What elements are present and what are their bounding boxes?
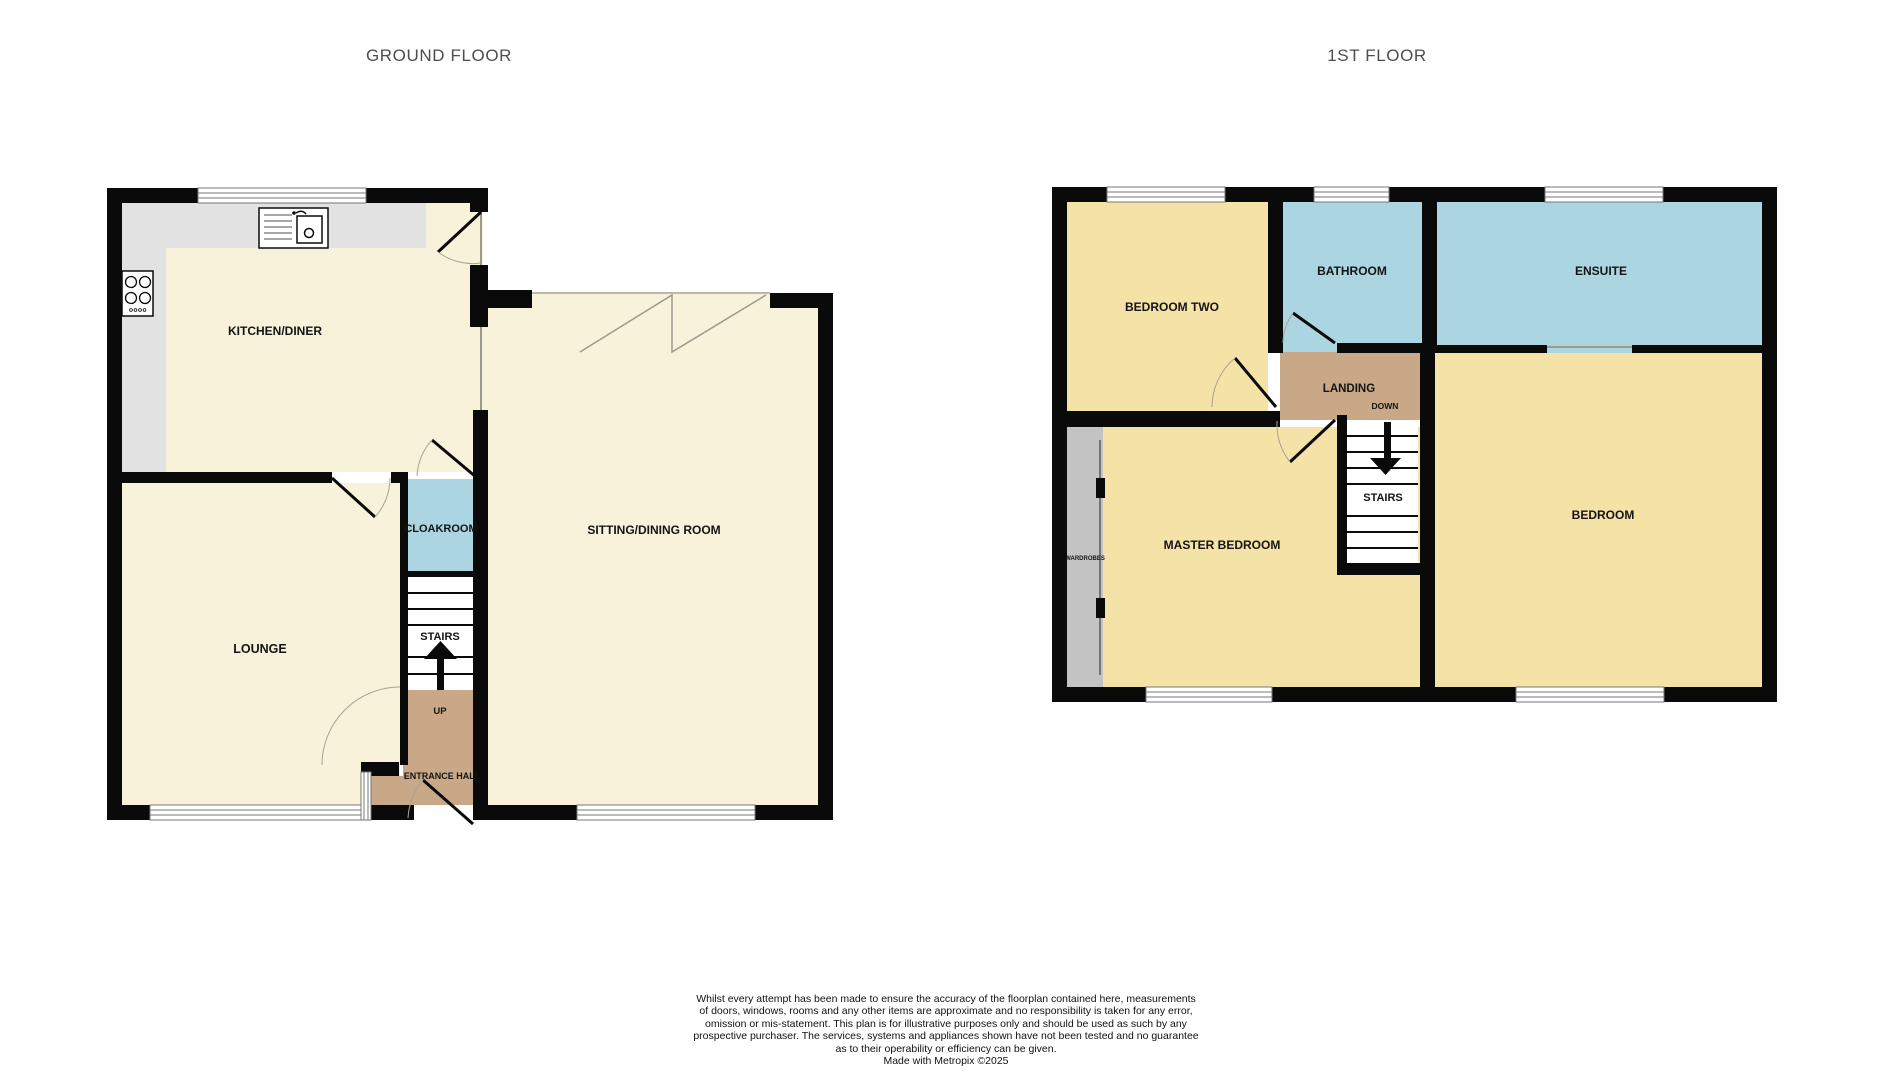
window xyxy=(577,805,755,820)
ground-floor-plan: KITCHEN/DINER LOUNGE SITTING/DINING ROOM… xyxy=(107,188,833,824)
master-bedroom-label: MASTER BEDROOM xyxy=(1164,538,1281,552)
wall-segment xyxy=(107,188,122,820)
wall-segment xyxy=(1067,411,1280,427)
disclaimer-credit: Made with Metropix ©2025 xyxy=(646,1055,1246,1067)
wall-segment xyxy=(1337,343,1422,353)
disclaimer-line: prospective purchaser. The services, sys… xyxy=(646,1030,1246,1042)
wall-segment xyxy=(473,410,488,820)
window xyxy=(198,188,366,203)
bathroom-label: BATHROOM xyxy=(1317,264,1387,278)
wall-segment xyxy=(122,472,332,483)
window xyxy=(1146,687,1272,702)
up-label: UP xyxy=(433,706,447,717)
disclaimer-line: Whilst every attempt has been made to en… xyxy=(646,993,1246,1005)
first-floor-title: 1ST FLOOR xyxy=(1327,46,1427,66)
wall-segment xyxy=(470,188,488,212)
up-arrow-stem xyxy=(437,657,444,690)
disclaimer-text: Whilst every attempt has been made to en… xyxy=(646,993,1246,1067)
bedroom-label: BEDROOM xyxy=(1572,508,1635,522)
floorplan-drawing: KITCHEN/DINER LOUNGE SITTING/DINING ROOM… xyxy=(0,0,1885,1080)
disclaimer-line: as to their operability or efficiency ca… xyxy=(646,1043,1246,1055)
wall-segment xyxy=(1437,345,1547,353)
wall-segment xyxy=(1422,187,1437,353)
wall-segment xyxy=(403,571,473,578)
ground-floor-title: GROUND FLOOR xyxy=(366,46,512,66)
entrance-hall-recess xyxy=(371,776,403,805)
sitting-dining-label: SITTING/DINING ROOM xyxy=(587,523,720,537)
wall-segment xyxy=(1052,187,1067,702)
wardrobes-label: WARDROBES xyxy=(1065,556,1105,562)
entrance-hall-label: ENTRANCE HALL xyxy=(404,771,481,781)
wall-segment xyxy=(1420,353,1435,687)
wall-segment xyxy=(1337,415,1347,575)
lounge-label: LOUNGE xyxy=(233,642,286,656)
wall-segment xyxy=(1762,187,1777,702)
bedroom-two-room xyxy=(1067,202,1268,427)
wall-segment xyxy=(818,295,833,820)
wall-segment xyxy=(400,472,408,765)
ensuite-label: ENSUITE xyxy=(1575,264,1627,278)
disclaimer-line: omission or mis-statement. This plan is … xyxy=(646,1018,1246,1030)
landing-label: LANDING xyxy=(1323,383,1375,395)
first-stairs-label: STAIRS xyxy=(1363,492,1403,504)
wall-segment xyxy=(1632,345,1762,353)
hob-icon xyxy=(122,271,153,316)
window xyxy=(1314,187,1389,202)
window xyxy=(1545,187,1663,202)
ground-stairs-label: STAIRS xyxy=(420,631,460,643)
window xyxy=(150,805,366,820)
sitting-dining-room xyxy=(483,293,818,805)
wall-segment xyxy=(470,290,532,308)
wall-segment xyxy=(770,293,833,308)
floorplan-page: GROUND FLOOR 1ST FLOOR xyxy=(0,0,1885,1080)
bedroom-two-label: BEDROOM TWO xyxy=(1125,300,1219,314)
down-arrow-stem xyxy=(1384,422,1391,460)
first-floor-plan: BEDROOM TWO BATHROOM ENSUITE LANDING DOW… xyxy=(1052,187,1777,702)
disclaimer-line: of doors, windows, rooms and any other i… xyxy=(646,1005,1246,1017)
down-label: DOWN xyxy=(1372,401,1399,411)
sink-icon xyxy=(259,208,328,248)
wall-segment xyxy=(1337,563,1435,575)
kitchen-diner-label: KITCHEN/DINER xyxy=(228,324,322,338)
wall-segment xyxy=(1268,187,1283,353)
sidelight-window xyxy=(361,772,371,820)
window xyxy=(1107,187,1225,202)
window xyxy=(1516,687,1664,702)
cloakroom-label: CLOAKROOM xyxy=(404,523,477,535)
